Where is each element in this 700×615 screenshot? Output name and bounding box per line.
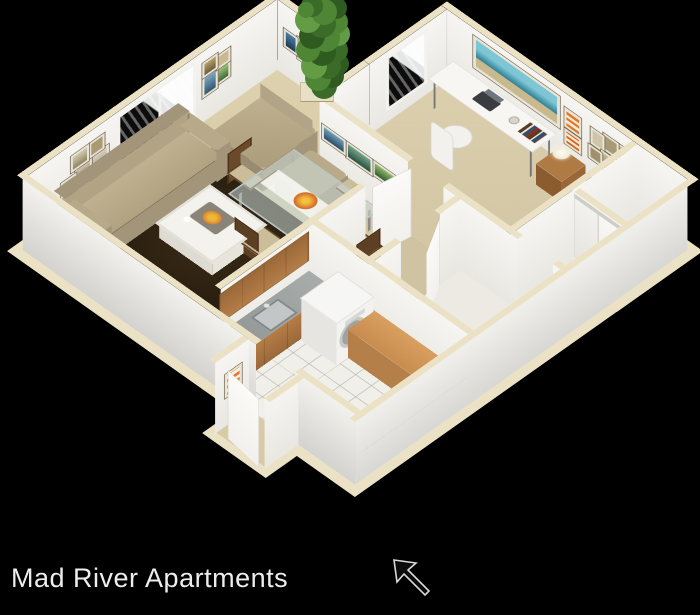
picture-frame (322, 123, 346, 156)
floorplan-image: { "caption": { "title": "Mad River Apart… (0, 0, 700, 615)
entrance-arrow-svg (386, 552, 438, 608)
pencil-cup (506, 115, 522, 126)
floorplan-floor (23, 15, 688, 485)
entrance-arrow-icon (386, 552, 438, 613)
page-title: Mad River Apartments (11, 563, 288, 594)
tree-icon (288, 0, 348, 96)
picture-frame (346, 140, 373, 176)
desk-books (518, 122, 548, 143)
tree-foliage (298, 2, 314, 18)
